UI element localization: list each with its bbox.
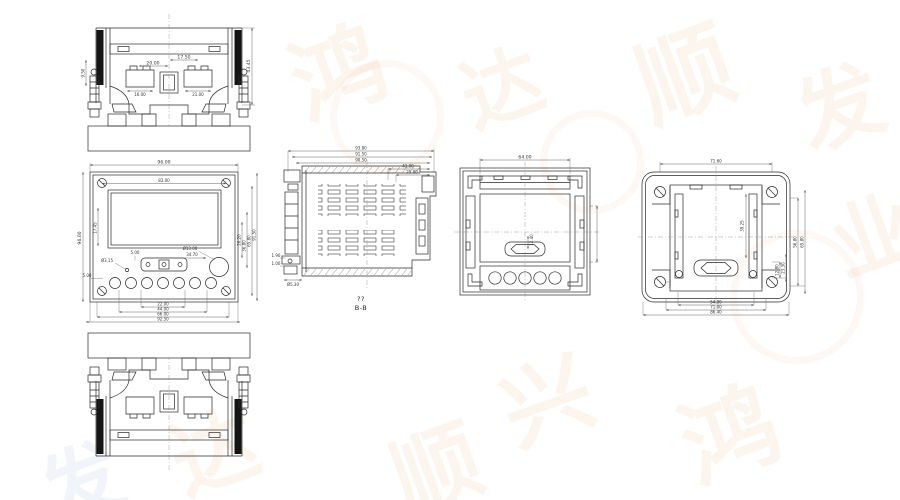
dim-label: 96.00 xyxy=(157,160,170,166)
rear-inner-drawing: 64.00 12.40 xyxy=(448,150,608,305)
section-bb-dimensions-top: 93.80 91.50 90.50 43.00 25.80 xyxy=(288,146,434,183)
top-section-body xyxy=(88,14,250,151)
dim-label: 83.00 xyxy=(158,178,170,183)
dim-label: 17.45 xyxy=(93,222,98,234)
section-bb-body xyxy=(282,160,436,290)
front-dimensions: 96.00 83.00 96.00 17.45 5.00 Ø13.00 34.7… xyxy=(77,160,257,323)
rear-outer-body xyxy=(638,166,794,308)
section-bb-drawing: 93.80 91.50 90.50 43.00 25.80 xyxy=(272,140,447,315)
dim-label: 71.60 xyxy=(710,159,722,164)
watermark-glyph: 业 xyxy=(812,160,900,300)
dim-label: 16.00 xyxy=(134,92,146,97)
dim-label: 56.80 xyxy=(793,236,798,248)
dim-label: 12.80 xyxy=(775,264,780,276)
dim-label: 96.00 xyxy=(77,231,83,244)
section-label: B-B xyxy=(355,304,368,312)
rear-inner-body xyxy=(454,162,600,300)
dim-label: Ø3.15 xyxy=(101,258,114,263)
rear-outer-dimensions: 71.60 39.25 12.80 23.30 56.80 65.80 54.8… xyxy=(643,159,805,316)
dim-label: 1.00 xyxy=(272,261,281,266)
dim-label: 92.50 xyxy=(157,317,169,322)
dim-label: 34.70 xyxy=(186,252,198,257)
bottom-section-drawing xyxy=(82,328,257,473)
watermark-glyph: 顺 xyxy=(614,0,750,149)
dim-label: 43.45 xyxy=(246,59,252,72)
watermark-glyph: 达 xyxy=(443,15,558,151)
top-section-dimensions: 20.00 17.50 16.00 21.00 9.50 43.45 xyxy=(81,28,256,105)
dim-label: 23.30 xyxy=(781,262,786,274)
dim-label: Ø5.30 xyxy=(287,282,300,287)
dim-label: 17.50 xyxy=(177,55,190,61)
dim-label: 93.80 xyxy=(355,146,367,151)
dim-label: 64.00 xyxy=(518,155,531,161)
dim-label: 65.80 xyxy=(800,236,805,248)
dim-label: 90.50 xyxy=(355,158,367,163)
dim-label: 91.50 xyxy=(252,229,257,241)
dim-label: 25.80 xyxy=(406,170,418,175)
dim-label: 9.50 xyxy=(81,68,86,77)
dim-label: 20.00 xyxy=(146,61,159,67)
watermark-glyph: 兴 xyxy=(480,319,609,472)
view-bottom-section xyxy=(82,328,257,473)
dim-label: 21.00 xyxy=(192,92,204,97)
view-section-bb: 93.80 91.50 90.50 43.00 25.80 xyxy=(272,140,447,315)
section-label-question: ?? xyxy=(357,295,365,303)
view-rear-inner: 64.00 12.40 xyxy=(448,150,608,305)
rear-outer-drawing: 71.60 39.25 12.80 23.30 56.80 65.80 54.8… xyxy=(630,152,815,317)
watermark-glyph: 鸿 xyxy=(270,0,402,145)
watermark-glyph: 鸿 xyxy=(659,348,795,500)
rear-inner-dimensions: 64.00 12.40 xyxy=(480,155,599,263)
dim-label: 5.00 xyxy=(83,273,92,278)
front-body xyxy=(90,172,238,302)
drawing-canvas: 鸿 达 顺 发 业 兴 鸿 达 顺 发 xyxy=(0,0,900,500)
top-section-drawing: 20.00 17.50 16.00 21.00 9.50 43.45 xyxy=(82,8,257,153)
dim-label: 1.90 xyxy=(272,253,281,258)
section-bb-dimensions-left: 1.90 1.00 Ø5.30 xyxy=(272,253,302,287)
view-top-section: 20.00 17.50 16.00 21.00 9.50 43.45 xyxy=(82,8,257,153)
view-rear-outer: 71.60 39.25 12.80 23.30 56.80 65.80 54.8… xyxy=(630,152,815,317)
dim-label: 91.50 xyxy=(355,152,367,157)
dim-label: 5.00 xyxy=(131,250,140,255)
dim-label: 86.40 xyxy=(710,310,722,315)
dim-label: Ø13.00 xyxy=(183,246,198,251)
front-drawing: 96.00 83.00 96.00 17.45 5.00 Ø13.00 34.7… xyxy=(75,150,265,325)
dim-label: 39.25 xyxy=(740,220,745,232)
view-front: 96.00 83.00 96.00 17.45 5.00 Ø13.00 34.7… xyxy=(75,150,265,325)
bottom-section-body xyxy=(88,333,250,470)
watermark-glyph: 顺 xyxy=(371,389,497,500)
dim-label: 12.40 xyxy=(529,234,534,246)
